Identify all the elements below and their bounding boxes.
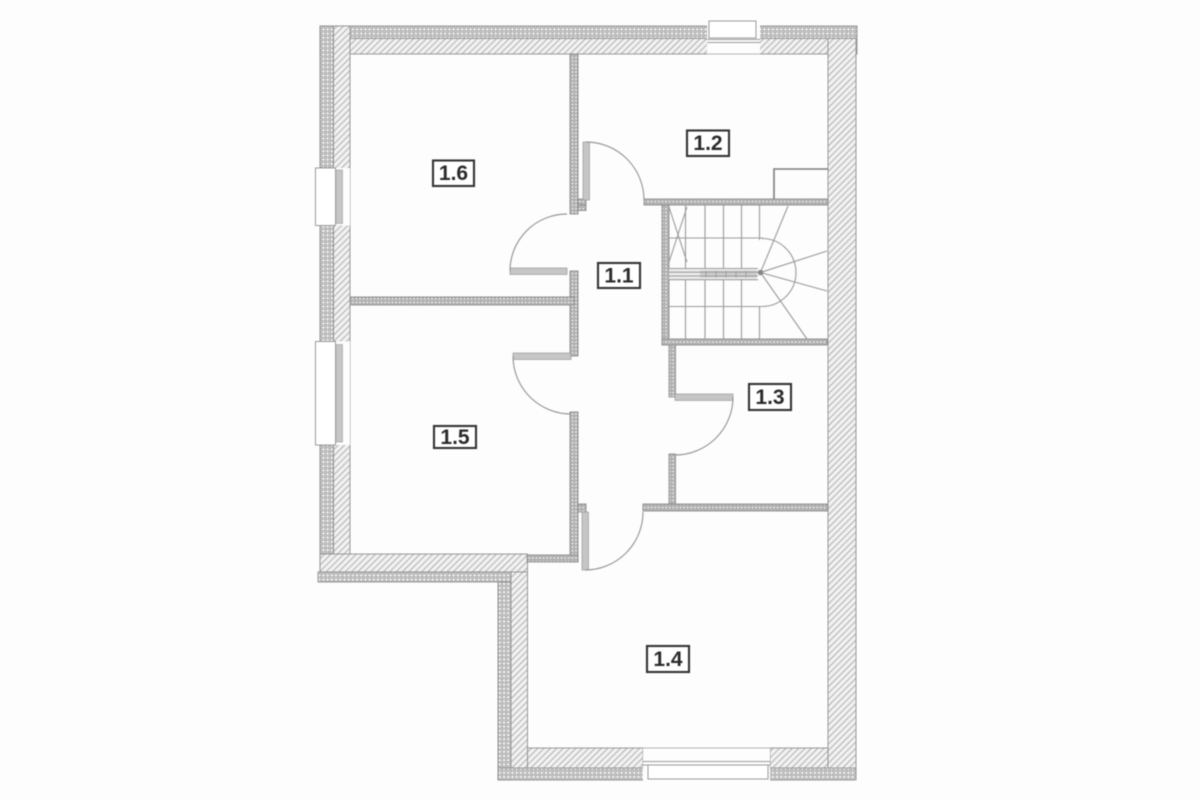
svg-text:1.2: 1.2	[693, 132, 722, 155]
svg-text:1.3: 1.3	[755, 386, 784, 409]
svg-text:1.1: 1.1	[604, 265, 634, 288]
svg-text:1.5: 1.5	[440, 426, 470, 449]
svg-text:1.6: 1.6	[439, 162, 468, 185]
svg-text:1.4: 1.4	[653, 648, 683, 671]
